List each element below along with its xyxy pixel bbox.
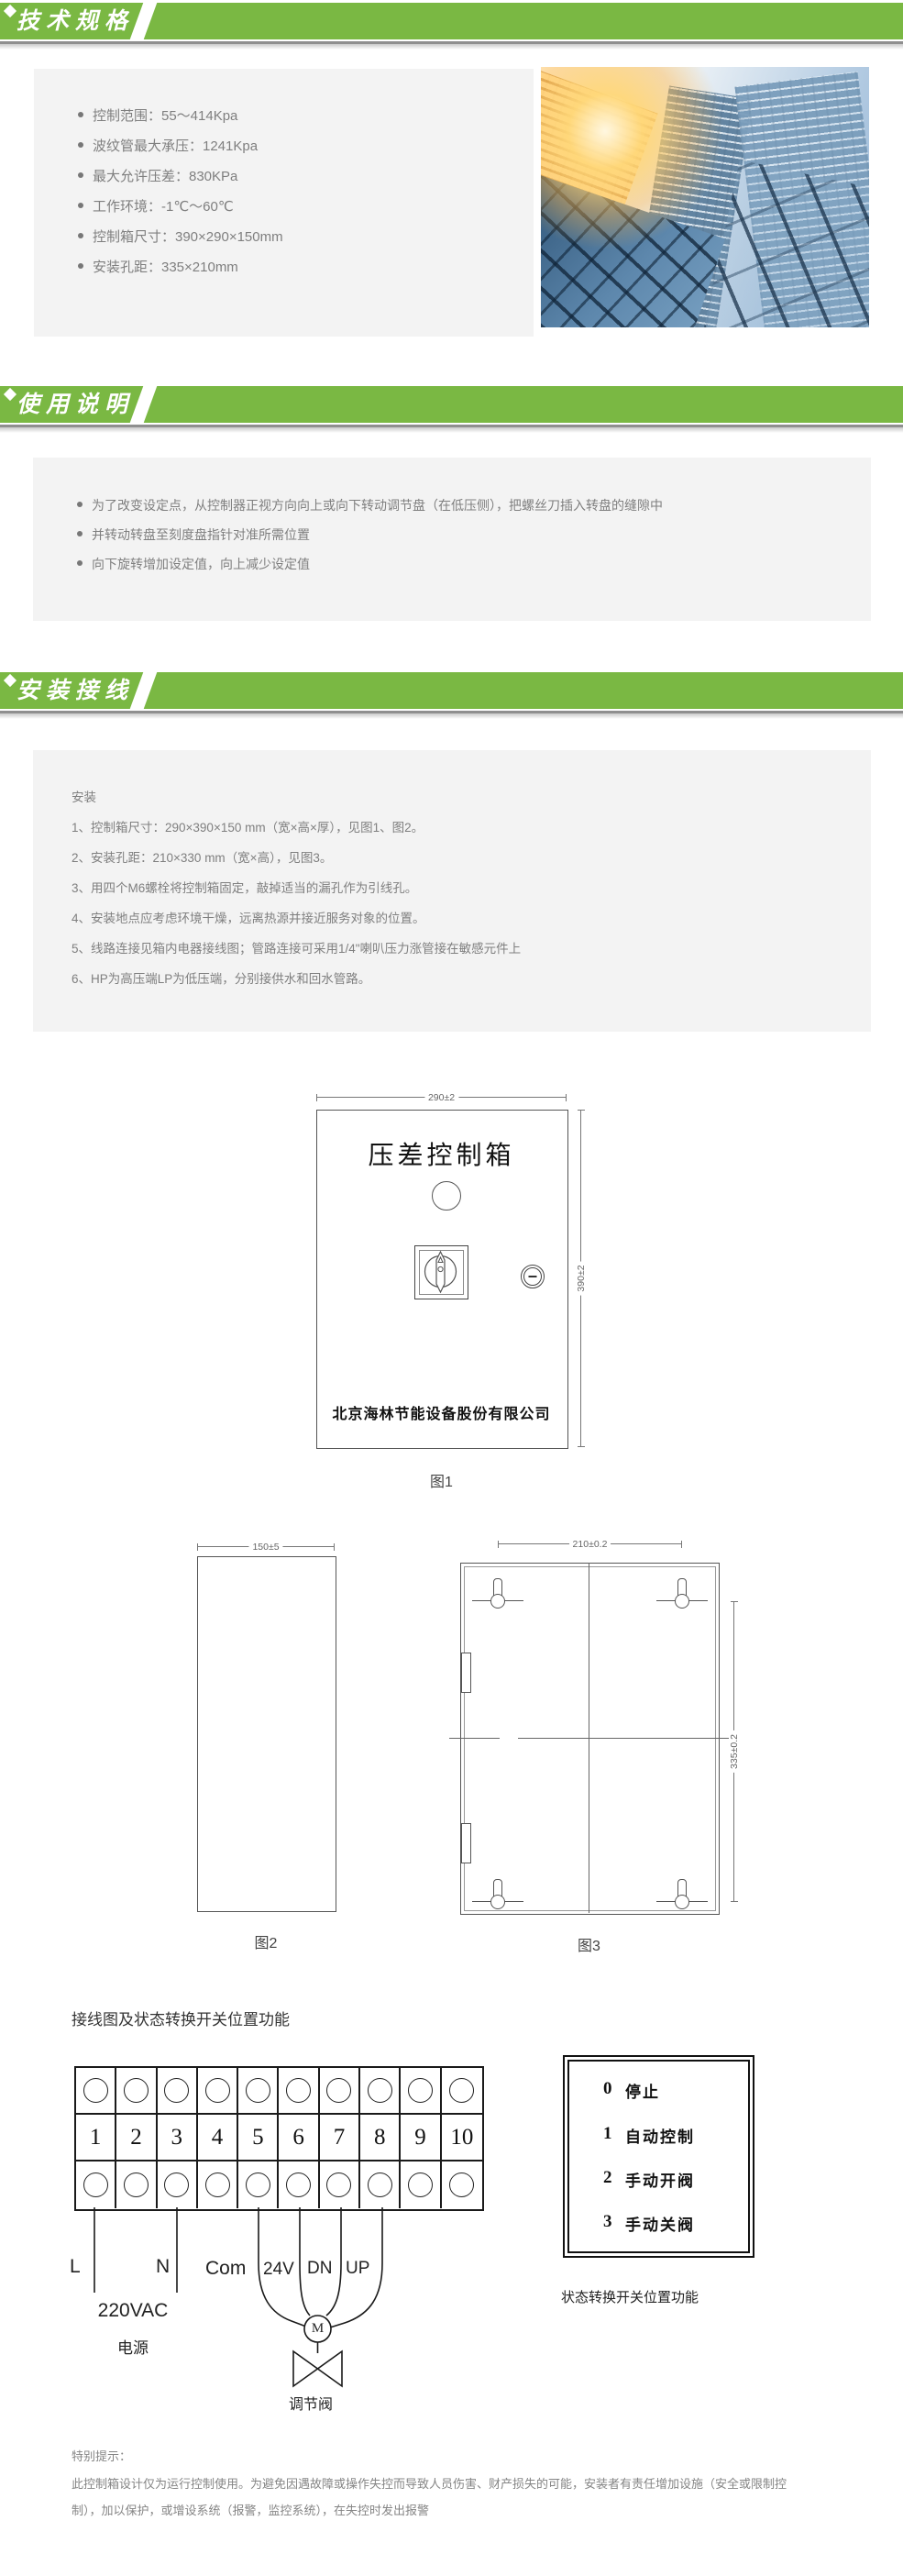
terminal-screw-icon (368, 2172, 392, 2197)
usage-text: 向下旋转增加设定值，向上减少设定值 (92, 557, 310, 571)
terminal-screw-icon (449, 2172, 474, 2197)
center-line-horizontal (518, 1738, 729, 1739)
terminal-screw-icon (246, 2078, 270, 2103)
mounting-keyhole (472, 1876, 523, 1928)
document-page: 技术规格 控制范围：55～414Kpa 波纹管最大承压：1241Kpa 最大允许… (0, 0, 903, 2576)
terminal-screw-icon (286, 2172, 311, 2197)
dimension-label: 150±5 (248, 1542, 282, 1553)
spec-item: 最大允许压差：830KPa (78, 166, 534, 196)
install-step: 4、安装地点应考虑环境干燥，远离热源并接近服务对象的位置。 (72, 908, 871, 938)
dimension-label: 210±0.2 (569, 1539, 611, 1550)
spec-item: 安装孔距：335×210mm (78, 257, 534, 287)
dimension-right: 390±2 (580, 1110, 581, 1447)
terminal-number: 9 (414, 2125, 426, 2150)
figure-2-caption: 图2 (197, 1930, 335, 1952)
terminal-screw-cell (116, 2068, 157, 2115)
header-slash-decoration (130, 672, 158, 709)
section-title-usage: 使用说明 (17, 386, 134, 423)
install-step: 5、线路连接见箱内电器接线图；管路连接可采用1/4"喇叭压力涨管接在敏感元件上 (72, 938, 871, 968)
mounting-keyhole (656, 1575, 708, 1627)
wire-label-up: UP (346, 2259, 369, 2279)
terminal-screw-cell (279, 2068, 319, 2115)
spec-text: 波纹管最大承压：1241Kpa (93, 138, 258, 154)
switch-position-number: 3 (603, 2212, 612, 2232)
notice-title: 特别提示： (72, 2447, 131, 2464)
terminal-screw-icon (408, 2172, 433, 2197)
knockout-slot (461, 1823, 471, 1863)
wiring-title: 接线图及状态转换开关位置功能 (72, 2007, 290, 2029)
section-header-tech-specs: 技术规格 (0, 3, 903, 39)
bullet-dot-icon (78, 233, 83, 238)
terminal-number-cell: 6 (279, 2115, 319, 2161)
spec-item: 控制范围：55～414Kpa (78, 105, 534, 136)
terminal-number: 6 (292, 2125, 304, 2150)
usage-item: 向下旋转增加设定值，向上减少设定值 (77, 555, 871, 584)
terminal-screw-cell (360, 2068, 401, 2115)
terminal-screw-cell (442, 2068, 482, 2115)
rotary-switch (414, 1245, 468, 1299)
header-shadow (0, 41, 903, 50)
section-header-usage: 使用说明 (0, 386, 903, 423)
company-name: 北京海林节能设备股份有限公司 (316, 1401, 567, 1423)
spec-text: 最大允许压差：830KPa (93, 169, 237, 184)
spec-item: 工作环境：-1℃～60℃ (78, 196, 534, 227)
keyhole-circle (490, 1594, 505, 1609)
terminal-screw-cell (442, 2161, 482, 2208)
bullet-dot-icon (78, 112, 83, 117)
terminal-screw-icon (205, 2078, 230, 2103)
terminal-screw-cell (158, 2161, 198, 2208)
usage-item: 为了改变设定点，从控制器正视方向向上或向下转动调节盘（在低压侧），把螺丝刀插入转… (77, 496, 871, 525)
terminal-number-cell: 1 (76, 2115, 116, 2161)
terminal-screw-cell (320, 2068, 360, 2115)
terminal-screw-icon (246, 2172, 270, 2197)
keyhole-circle (675, 1594, 689, 1609)
side-outline (197, 1556, 336, 1912)
terminal-number-cell: 3 (158, 2115, 198, 2161)
terminal-number-cell: 5 (238, 2115, 279, 2161)
terminal-screw-icon (83, 2078, 108, 2103)
switch-position-caption: 状态转换开关位置功能 (561, 2287, 699, 2306)
install-step: 6、HP为高压端LP为低压端，分别接供水和回水管路。 (72, 968, 871, 999)
bullet-dot-icon (78, 203, 83, 208)
figure-1-caption: 图1 (316, 1469, 567, 1491)
figure-3-caption: 图3 (460, 1933, 718, 1955)
terminal-number: 8 (374, 2125, 386, 2150)
figure-3: 210±0.2 335±0.2 图3 (449, 1527, 761, 1962)
terminal-screw-cell (238, 2161, 279, 2208)
center-line-horizontal (449, 1738, 500, 1739)
dimension-label: 335±0.2 (729, 1730, 740, 1773)
switch-position-box: 0 停止 1 自动控制 2 手动开阀 3 手动关阀 (563, 2055, 754, 2258)
usage-box: 为了改变设定点，从控制器正视方向向上或向下转动调节盘（在低压侧），把螺丝刀插入转… (33, 458, 871, 621)
terminal-screw-icon (205, 2172, 230, 2197)
terminal-number: 2 (130, 2125, 142, 2150)
wire-label-line: L (70, 2256, 81, 2278)
motor-label: M (304, 2321, 331, 2337)
lock-screw-icon (521, 1265, 545, 1288)
wire-label-neutral: N (156, 2256, 170, 2278)
header-shadow (0, 711, 903, 719)
terminal-screw-cell (76, 2068, 116, 2115)
spec-text: 安装孔距：335×210mm (93, 260, 238, 275)
terminal-screw-icon (326, 2172, 351, 2197)
terminal-screw-cell (76, 2161, 116, 2208)
header-shadow (0, 425, 903, 433)
terminal-number-cell: 8 (360, 2115, 401, 2161)
bullet-dot-icon (78, 172, 83, 178)
mounting-keyhole (656, 1876, 708, 1928)
dimension-top: 210±0.2 (498, 1543, 682, 1544)
dimension-right: 335±0.2 (733, 1601, 734, 1902)
install-step: 2、安装孔距：210×330 mm（宽×高），见图3。 (72, 847, 871, 878)
terminal-screw-cell (238, 2068, 279, 2115)
terminal-screw-cell (401, 2068, 441, 2115)
figure-1: 290±2 压差控制箱 390±2 北京海林节能设备股份有限公司 图1 (312, 1091, 605, 1495)
header-slash-decoration (130, 386, 158, 423)
mounting-keyhole (472, 1575, 523, 1627)
terminal-screw-icon (326, 2078, 351, 2103)
dimension-label: 390±2 (576, 1261, 587, 1295)
install-heading: 安装 (72, 787, 871, 817)
figure-2: 150±5 图2 (193, 1541, 339, 1962)
terminal-screw-cell (279, 2161, 319, 2208)
terminal-number: 4 (212, 2125, 224, 2150)
install-box: 安装 1、控制箱尺寸：290×390×150 mm（宽×高×厚），见图1、图2。… (33, 750, 871, 1032)
header-slash-decoration (130, 3, 158, 39)
terminal-screw-cell (360, 2161, 401, 2208)
spec-text: 控制范围：55～414Kpa (93, 108, 237, 124)
notice-body-line: 此控制箱设计仅为运行控制使用。为避免因遇故障或操作失控而导致人员伤害、财产损失的… (72, 2474, 787, 2492)
terminal-number: 7 (334, 2125, 346, 2150)
terminal-screw-icon (164, 2172, 189, 2197)
switch-position-label: 停止 (625, 2079, 660, 2102)
bullet-dot-icon (78, 263, 83, 269)
diamond-icon (4, 674, 17, 687)
sun-flare (541, 67, 724, 250)
terminal-block: 1 2 3 4 5 6 7 8 9 10 (74, 2066, 484, 2211)
terminal-screw-icon (124, 2078, 149, 2103)
diamond-icon (4, 388, 17, 401)
terminal-number: 1 (90, 2125, 102, 2150)
section-title-install: 安装接线 (17, 672, 134, 709)
dimension-top: 290±2 (316, 1097, 567, 1098)
spec-item: 波纹管最大承压：1241Kpa (78, 136, 534, 166)
notice-body-line: 制），加以保护，或增设系统（报警，监控系统），在失控时发出报警 (72, 2501, 429, 2518)
switch-position-label: 手动关阀 (625, 2212, 695, 2235)
terminal-screw-cell (198, 2068, 238, 2115)
switch-position-number: 1 (603, 2124, 612, 2144)
terminal-screw-cell (158, 2068, 198, 2115)
terminal-number-cell: 4 (198, 2115, 238, 2161)
bullet-dot-icon (78, 142, 83, 148)
terminal-number: 3 (171, 2125, 182, 2150)
terminal-screw-icon (83, 2172, 108, 2197)
section-title-tech-specs: 技术规格 (17, 3, 134, 39)
terminal-screw-icon (408, 2078, 433, 2103)
terminal-number: 10 (450, 2125, 473, 2150)
keyhole-circle (675, 1895, 689, 1909)
diamond-icon (4, 5, 17, 17)
terminal-screw-cell (198, 2161, 238, 2208)
panel-title: 压差控制箱 (316, 1135, 567, 1172)
install-step: 1、控制箱尺寸：290×390×150 mm（宽×高×厚），见图1、图2。 (72, 817, 871, 847)
usage-text: 为了改变设定点，从控制器正视方向向上或向下转动调节盘（在低压侧），把螺丝刀插入转… (92, 498, 663, 513)
switch-position-label: 自动控制 (625, 2124, 695, 2147)
install-step: 3、用四个M6螺栓将控制箱固定，敲掉适当的漏孔作为引线孔。 (72, 878, 871, 908)
dimension-top: 150±5 (197, 1546, 335, 1547)
bullet-dot-icon (77, 531, 83, 536)
dimension-label: 290±2 (424, 1092, 458, 1103)
keyhole-circle (490, 1895, 505, 1909)
terminal-screw-icon (124, 2172, 149, 2197)
terminal-screw-cell (320, 2161, 360, 2208)
switch-position-number: 0 (603, 2079, 612, 2099)
terminal-screw-icon (164, 2078, 189, 2103)
terminal-number-cell: 2 (116, 2115, 157, 2161)
section-header-install: 安装接线 (0, 672, 903, 709)
terminal-number-cell: 7 (320, 2115, 360, 2161)
panel-hole-circle (432, 1181, 461, 1211)
switch-position-number: 2 (603, 2168, 612, 2188)
usage-text: 并转动转盘至刻度盘指针对准所需位置 (92, 527, 310, 542)
power-source-label: 电源 (87, 2335, 179, 2358)
terminal-number-cell: 9 (401, 2115, 441, 2161)
wire-label-24v: 24V (263, 2260, 294, 2280)
terminal-number-cell: 10 (442, 2115, 482, 2161)
rotary-knob-icon (414, 1245, 467, 1298)
knockout-slot (461, 1653, 471, 1693)
terminal-screw-cell (401, 2161, 441, 2208)
usage-item: 并转动转盘至刻度盘指针对准所需位置 (77, 525, 871, 555)
switch-position-label: 手动开阀 (625, 2168, 695, 2191)
terminal-screw-icon (286, 2078, 311, 2103)
spec-item: 控制箱尺寸：390×290×150mm (78, 227, 534, 257)
tech-specs-box: 控制范围：55～414Kpa 波纹管最大承压：1241Kpa 最大允许压差：83… (34, 69, 534, 337)
terminal-screw-icon (449, 2078, 474, 2103)
spec-text: 控制箱尺寸：390×290×150mm (93, 229, 283, 245)
power-voltage-label: 220VAC (87, 2300, 179, 2322)
terminal-number: 5 (252, 2125, 264, 2150)
terminal-screw-icon (368, 2078, 392, 2103)
terminal-screw-cell (116, 2161, 157, 2208)
wire-label-dn: DN (307, 2259, 332, 2279)
bullet-dot-icon (77, 560, 83, 566)
building-photo (541, 67, 869, 327)
valve-label: 调节阀 (289, 2392, 333, 2414)
bullet-dot-icon (77, 502, 83, 507)
wire-label-com: Com (205, 2258, 246, 2280)
spec-text: 工作环境：-1℃～60℃ (93, 199, 234, 215)
